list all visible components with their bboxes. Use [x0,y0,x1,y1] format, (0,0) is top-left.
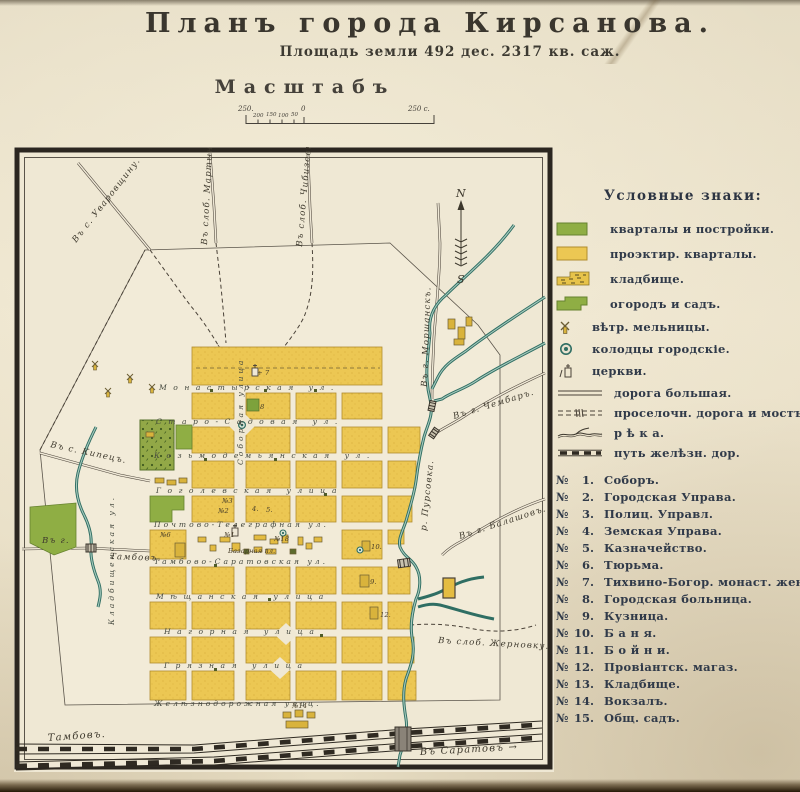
well-icon [556,341,592,357]
legend-num-7: №7.Тихвино-Богор. монаст. женск. [556,573,800,590]
legend-num-5: №5.Казначейство. [556,539,800,556]
street-meshchanskaya: Мѣщанская улица [155,592,330,601]
street-monastyrskaya: Монастырская ул. [158,383,340,392]
marker-12: 12. [380,611,391,619]
legend-num-2: №2.Городская Управа. [556,488,800,505]
legend-num-1: №1.Соборъ. [556,471,800,488]
legend-item-proekt: проэктир. кварталы. [556,241,800,266]
legend-num-9: №9.Кузница. [556,607,800,624]
legend-item-kvartaly: кварталы и постройки. [556,216,800,241]
legend-num-11: №11.Б о й н и. [556,641,800,658]
legend-num-6: №6.Тюрьма. [556,556,800,573]
street-nagornaya: Нагорная улица [163,627,320,636]
legend-item-proselochn: проселочн. дорога и мостъ. [556,403,800,422]
street-pochtovo: Почтово-Телеграфная ул. [153,520,329,529]
scale-tick-50: 50 [291,112,298,118]
marker-6: №6 [159,531,171,539]
scale-far-left: 250. [238,105,254,113]
legend-num-15: №15.Общ. садъ. [556,709,800,726]
legend-item-railroad: путь желѣзн. дор. [556,443,800,462]
marker-9: 9. [370,578,377,586]
railway-bridge [395,727,411,751]
compass-north: N [455,187,466,200]
street-kozmodemyanskaya: Козьмодемьянская ул. [153,451,376,460]
legend-item-melnitsy: вѣтр. мельницы. [556,316,800,338]
legend-item-tserkvi: церкви. [556,360,800,382]
scale-tick-100: 100 [278,113,289,119]
street-gogolevskaya: Гоголевская улица [155,486,343,495]
railway-line-sample [556,448,614,458]
marker-18: №18 [273,535,290,543]
scale-bar: 250. 200 150 100 50 0 250 с. [238,100,448,134]
legend-num-4: №4.Земская Управа. [556,522,800,539]
legend-item-reka: р ѣ к а. [556,423,800,442]
scale-far-right: 250 с. [407,105,430,113]
scale-heading: Масштабъ [170,76,440,98]
street-sobornaya: Соборная улица [236,358,245,465]
well-icon [357,547,363,553]
map-svg: N S Монастырская ул. Старо-Садовая ул. К… [14,147,554,772]
river-line-sample [556,427,614,439]
legend-numbered-list: №1.Соборъ. №2.Городская Управа. №3.Полиц… [556,471,800,726]
compass-south: S [457,273,465,286]
marker-7: + 7 [257,369,270,377]
marker-2: №2 [217,507,229,515]
legend-num-8: №8.Городская больница. [556,590,800,607]
street-gryaznaya: Грязная улица [163,661,309,670]
marker-4: 4. [251,505,259,513]
road-label-tambov-post: Тамбовъ. [110,551,162,564]
legend: Условные знаки: кварталы и постройки. пр… [556,182,800,726]
road-label-tambov-pre: Въ г. [41,536,70,546]
cemetery-swatch [556,271,610,287]
legend-item-kolodtsy: колодцы городскіе. [556,338,800,360]
main-road-line-sample [556,388,614,398]
photo-edge-bottom [0,779,800,792]
legend-item-kladbishche: кладбище. [556,266,800,291]
church-icon [556,362,592,380]
page-title: Планъ города Кирсанова. [0,8,800,39]
legend-num-10: №10.Б а н я. [556,624,800,641]
photo-edge-top [0,0,800,6]
marker-8: 8 [260,403,265,411]
projected-quarters-swatch [556,246,610,261]
built-quarters-swatch [556,222,610,236]
marker-bazaar: Базарная пл. [227,547,275,555]
scale-tick-150: 150 [266,112,277,118]
legend-num-13: №13.Кладбище. [556,675,800,692]
page-subtitle: Площадь земли 492 дес. 2317 кв. саж. [60,44,800,60]
legend-item-ogorod: огородъ и садъ. [556,291,800,316]
legend-heading: Условные знаки: [566,188,800,204]
scale-tick-200: 200 [252,113,264,119]
country-road-line-sample [556,408,614,418]
legend-item-doroga: дорога большая. [556,383,800,402]
marker-3: №3 [221,497,233,505]
garden-swatch [556,296,610,311]
legend-num-14: №14.Вокзалъ. [556,692,800,709]
street-starosadovaya: Старо-Садовая ул. [156,417,344,426]
legend-num-3: №3.Полиц. Управл. [556,505,800,522]
marker-10: 10. [371,543,382,551]
street-tambovo-saratovskaya: Тамбово-Саратовская ул. [154,557,328,566]
marker-14: №14 [291,702,307,710]
legend-num-12: №12.Провіантск. магаз. [556,658,800,675]
marker-1: №1 [223,531,235,539]
windmill-icon [556,319,592,335]
scale-zero: 0 [301,105,306,113]
marker-5: 5. [266,506,273,514]
map-sheet: Планъ города Кирсанова. Площадь земли 49… [0,0,800,792]
